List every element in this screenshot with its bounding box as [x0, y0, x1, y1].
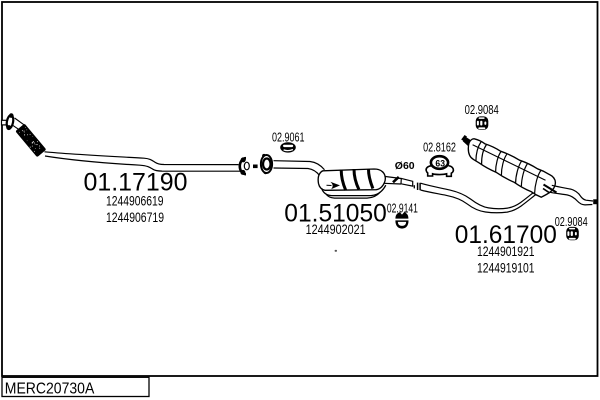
svg-text:02.9061: 02.9061 — [272, 129, 305, 144]
svg-text:02.9141: 02.9141 — [387, 200, 418, 215]
svg-text:1244902021: 1244902021 — [306, 222, 366, 237]
svg-text:02.9084: 02.9084 — [555, 214, 588, 229]
svg-text:1244906719: 1244906719 — [106, 210, 164, 225]
svg-text:01.17190: 01.17190 — [84, 168, 188, 196]
svg-text:02.8162: 02.8162 — [423, 140, 456, 155]
svg-text:1244919101: 1244919101 — [477, 260, 535, 275]
svg-text:1244906619: 1244906619 — [106, 193, 164, 208]
svg-text:Ø60: Ø60 — [395, 161, 415, 172]
svg-text:63: 63 — [435, 159, 445, 169]
svg-text:1244901921: 1244901921 — [477, 244, 535, 259]
svg-text:02.9084: 02.9084 — [465, 102, 499, 117]
svg-text:MERC20730A: MERC20730A — [5, 380, 95, 397]
